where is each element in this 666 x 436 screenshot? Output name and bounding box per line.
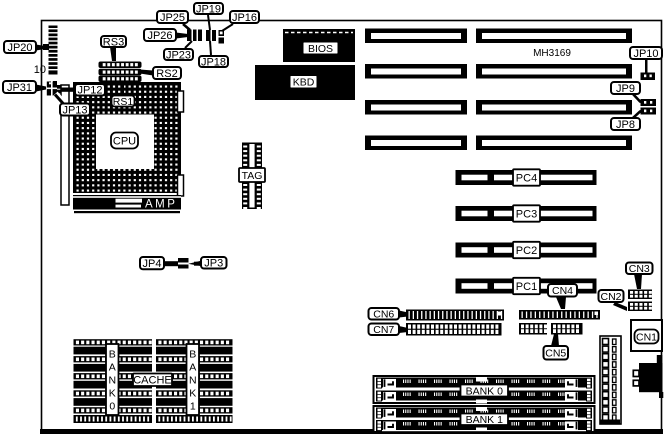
svg-text:BANK 0: BANK 0 [466, 385, 504, 397]
svg-text:BANK 1: BANK 1 [466, 414, 504, 426]
svg-text:JP12: JP12 [77, 85, 102, 97]
svg-text:N: N [108, 374, 116, 386]
svg-text:K: K [189, 387, 196, 399]
svg-text:PC2: PC2 [516, 245, 537, 257]
svg-text:PC4: PC4 [516, 172, 537, 184]
svg-text:CN4: CN4 [552, 285, 573, 297]
svg-text:AMP: AMP [145, 199, 177, 211]
svg-text:JP20: JP20 [7, 42, 32, 54]
svg-text:JP10: JP10 [633, 48, 658, 60]
svg-text:RS1: RS1 [113, 96, 134, 108]
svg-text:JP25: JP25 [160, 12, 185, 24]
svg-text:JP19: JP19 [196, 3, 221, 15]
svg-text:BIOS: BIOS [308, 43, 333, 55]
svg-text:N: N [189, 374, 197, 386]
svg-text:B: B [109, 348, 116, 360]
svg-text:CN5: CN5 [545, 348, 566, 360]
svg-text:0: 0 [109, 400, 115, 412]
svg-text:JP13: JP13 [62, 104, 87, 116]
svg-text:A: A [189, 361, 196, 373]
svg-text:CACHE: CACHE [133, 375, 172, 387]
svg-text:JP23: JP23 [166, 49, 191, 61]
svg-text:CN6: CN6 [373, 309, 394, 321]
svg-text:K: K [109, 387, 116, 399]
svg-text:JP9: JP9 [616, 83, 635, 95]
svg-text:KBD: KBD [293, 77, 315, 89]
svg-text:CPU: CPU [113, 135, 136, 147]
svg-text:JP26: JP26 [147, 30, 172, 42]
svg-text:A: A [109, 361, 116, 373]
svg-text:JP8: JP8 [616, 119, 635, 131]
svg-text:CN3: CN3 [629, 263, 650, 275]
svg-text:CN2: CN2 [600, 291, 621, 303]
svg-text:PC3: PC3 [516, 208, 537, 220]
svg-text:JP31: JP31 [7, 82, 32, 94]
svg-text:JP16: JP16 [232, 12, 257, 24]
svg-text:TAG: TAG [242, 170, 263, 182]
svg-text:1: 1 [190, 400, 196, 412]
svg-text:10: 10 [34, 64, 46, 76]
svg-text:PC1: PC1 [516, 281, 537, 293]
svg-text:JP18: JP18 [201, 56, 226, 68]
svg-text:JP4: JP4 [143, 258, 162, 270]
svg-text:JP3: JP3 [204, 258, 223, 270]
svg-text:RS2: RS2 [156, 68, 177, 80]
svg-text:RS3: RS3 [103, 36, 124, 48]
svg-text:B: B [189, 348, 196, 360]
svg-text:MH3169: MH3169 [533, 48, 571, 59]
svg-text:CN1: CN1 [636, 331, 657, 343]
svg-text:CN7: CN7 [373, 324, 394, 336]
